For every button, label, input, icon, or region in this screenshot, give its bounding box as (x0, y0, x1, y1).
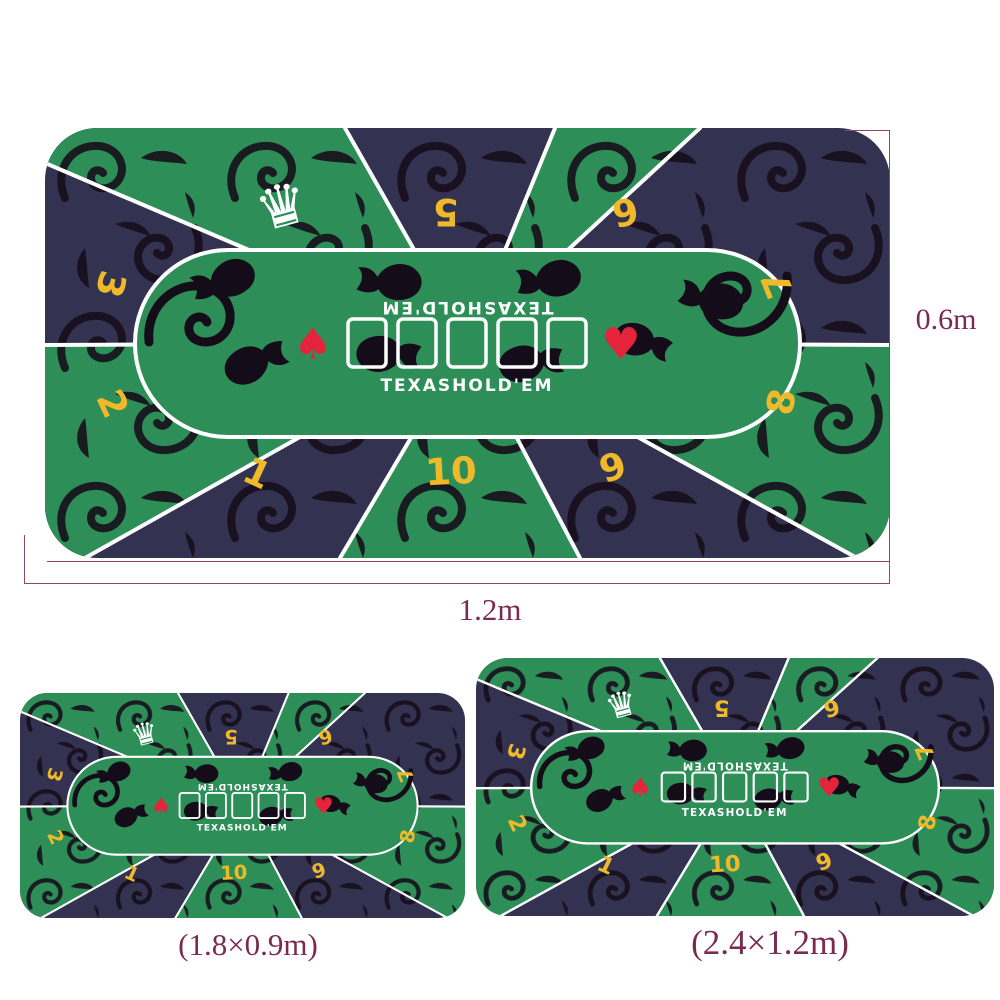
brand-text: TEXASHOLD'EM (380, 376, 553, 396)
poker-mat-1.8x0.9m: TEXASHOLD'EM TEXASHOLD'EM ♠ ♥ ♛ 1 2 3 5 … (20, 693, 465, 918)
seat-number-10: 10 (708, 851, 741, 878)
poker-mat: TEXASHOLD'EM TEXASHOLD'EM ♠ ♥ ♛ 1 2 3 5 … (476, 658, 994, 916)
seat-number-10: 10 (220, 861, 248, 885)
dimension-line-right-vertical (889, 130, 890, 583)
seat-number-5: 5 (224, 725, 238, 748)
caption-xlarge-mat: (2.4×1.2m) (615, 924, 925, 963)
caption-medium-mat: (1.8×0.9m) (103, 928, 393, 962)
poker-mat: TEXASHOLD'EM TEXASHOLD'EM ♠ ♥ ♛ 1 2 3 5 … (45, 128, 890, 558)
poker-mat: TEXASHOLD'EM TEXASHOLD'EM ♠ ♥ ♛ 1 2 3 5 … (20, 693, 465, 918)
heart-icon: ♥ (313, 794, 334, 820)
width-dimension-label: 1.2m (420, 593, 560, 627)
brand-text-reversed: TEXASHOLD'EM (682, 759, 788, 771)
dimension-line-top-tick (845, 130, 890, 131)
seat-number-10: 10 (424, 449, 478, 495)
poker-mat-1.2x0.6m: TEXASHOLD'EM TEXASHOLD'EM ♠ ♥ ♛ 1 2 3 5 … (45, 128, 890, 558)
brand-text-reversed: TEXASHOLD'EM (380, 297, 553, 317)
spade-icon: ♠ (151, 794, 172, 820)
poker-mat-2.4x1.2m: TEXASHOLD'EM TEXASHOLD'EM ♠ ♥ ♛ 1 2 3 5 … (476, 658, 994, 916)
brand-text: TEXASHOLD'EM (197, 824, 288, 834)
brand-text: TEXASHOLD'EM (682, 807, 788, 819)
heart-icon: ♥ (817, 773, 841, 804)
seat-number-5: 5 (714, 695, 730, 721)
seat-number-5: 5 (433, 190, 459, 233)
spade-icon: ♠ (293, 319, 332, 370)
spade-icon: ♠ (628, 773, 652, 804)
dimension-line-bottom-outer (24, 583, 890, 584)
heart-icon: ♥ (601, 319, 640, 370)
dimension-line-bottom-inner (47, 561, 890, 562)
dimension-line-left-tick (24, 535, 25, 583)
brand-text-reversed: TEXASHOLD'EM (197, 781, 288, 791)
height-dimension-label: 0.6m (896, 303, 996, 336)
